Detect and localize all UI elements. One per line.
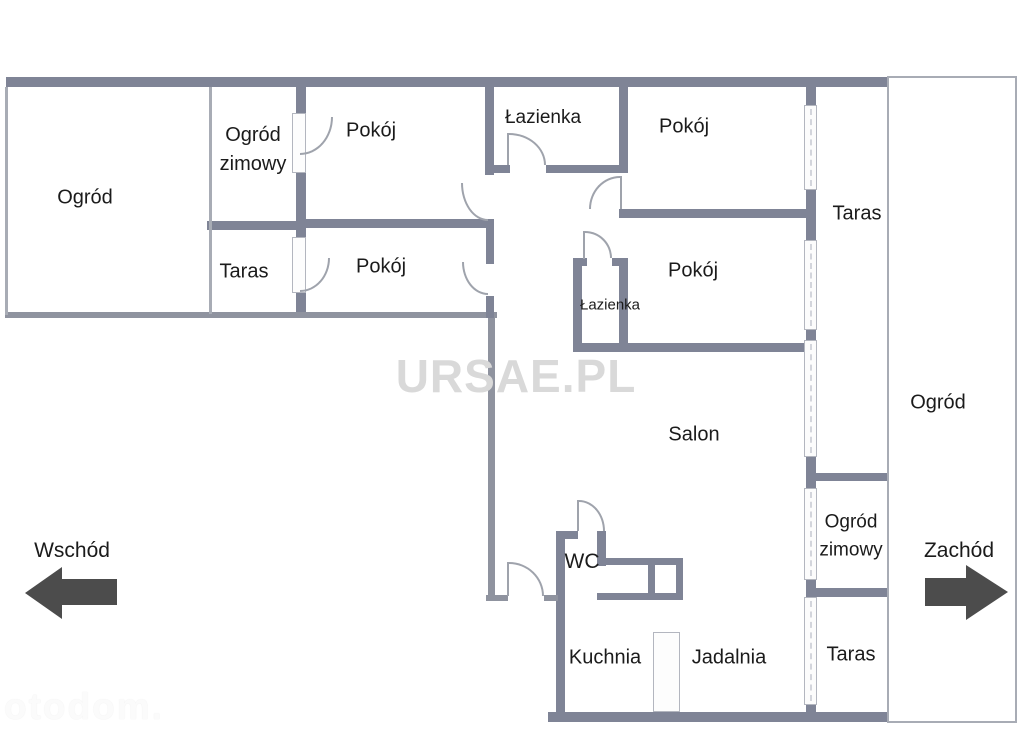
wall xyxy=(806,588,888,597)
wall xyxy=(619,87,628,173)
floor-plan: Ogród Ogród zimowy Taras Pokój Pokój Łaz… xyxy=(0,0,1024,746)
wall xyxy=(494,165,510,173)
window xyxy=(804,597,817,705)
wall xyxy=(296,219,494,228)
wall xyxy=(648,558,655,600)
window-glass xyxy=(810,109,812,186)
window xyxy=(804,105,817,190)
room-label-pokoj-mid-right: Pokój xyxy=(668,260,718,283)
wall xyxy=(486,296,494,318)
boundary-line xyxy=(5,87,8,315)
wall xyxy=(597,593,683,600)
room-label-pokoj-top-left: Pokój xyxy=(346,120,396,143)
room-label-ogrod-left: Ogród xyxy=(57,187,113,210)
wall xyxy=(486,224,494,264)
boundary-line xyxy=(887,76,1017,78)
east-arrow-icon xyxy=(20,560,120,622)
window xyxy=(804,240,817,330)
wall xyxy=(556,601,565,712)
watermark-otodom: otodom. xyxy=(4,686,164,728)
wall xyxy=(5,312,497,318)
wall xyxy=(546,165,628,173)
room-label-ogrod-zimowy-left: Ogród zimowy xyxy=(203,121,303,179)
door-arc xyxy=(462,262,488,295)
wall xyxy=(548,712,888,722)
wall xyxy=(544,595,558,601)
room-label-pokoj-mid-left: Pokój xyxy=(356,256,406,279)
room-label-lazienka-top: Łazienka xyxy=(505,107,581,129)
room-label-ogrod-zimowy-right: Ogród zimowy xyxy=(810,508,892,563)
door-arc xyxy=(509,562,544,596)
room-label-wc: WC xyxy=(565,550,600,574)
door-arc xyxy=(589,176,620,209)
door-arc xyxy=(585,231,612,258)
wall xyxy=(573,258,587,266)
room-label-salon: Salon xyxy=(668,424,719,447)
wall xyxy=(619,209,806,218)
boundary-line xyxy=(1015,76,1017,723)
door-arc xyxy=(579,500,605,531)
window-glass xyxy=(810,344,812,453)
room-label-pokoj-top-right: Pokój xyxy=(659,116,709,139)
boundary-line xyxy=(887,76,889,723)
watermark-ursae: URSAE.PL xyxy=(396,349,637,403)
room-label-lazienka-small: Łazienka xyxy=(580,297,640,314)
west-arrow-icon xyxy=(920,558,1015,622)
door xyxy=(653,632,680,712)
wall xyxy=(676,558,683,600)
wall xyxy=(485,87,494,175)
room-label-taras-left: Taras xyxy=(220,261,269,284)
room-label-jadalnia: Jadalnia xyxy=(692,647,767,670)
door-arc xyxy=(509,133,546,165)
window xyxy=(804,340,817,457)
wall xyxy=(806,473,888,481)
room-label-kuchnia: Kuchnia xyxy=(569,647,641,670)
door-arc xyxy=(461,183,488,221)
window-glass xyxy=(810,601,812,701)
door-arc xyxy=(300,117,333,155)
boundary-line xyxy=(887,721,1017,723)
wall xyxy=(6,77,888,87)
wall xyxy=(207,221,305,230)
room-label-ogrod-right: Ogród xyxy=(910,392,966,415)
room-label-taras-right-top: Taras xyxy=(833,203,882,226)
door-leaf xyxy=(620,176,622,209)
window-glass xyxy=(810,244,812,326)
wall xyxy=(556,531,578,539)
wall xyxy=(597,558,683,565)
door-arc xyxy=(300,258,330,292)
room-label-taras-right-bottom: Taras xyxy=(827,644,876,667)
